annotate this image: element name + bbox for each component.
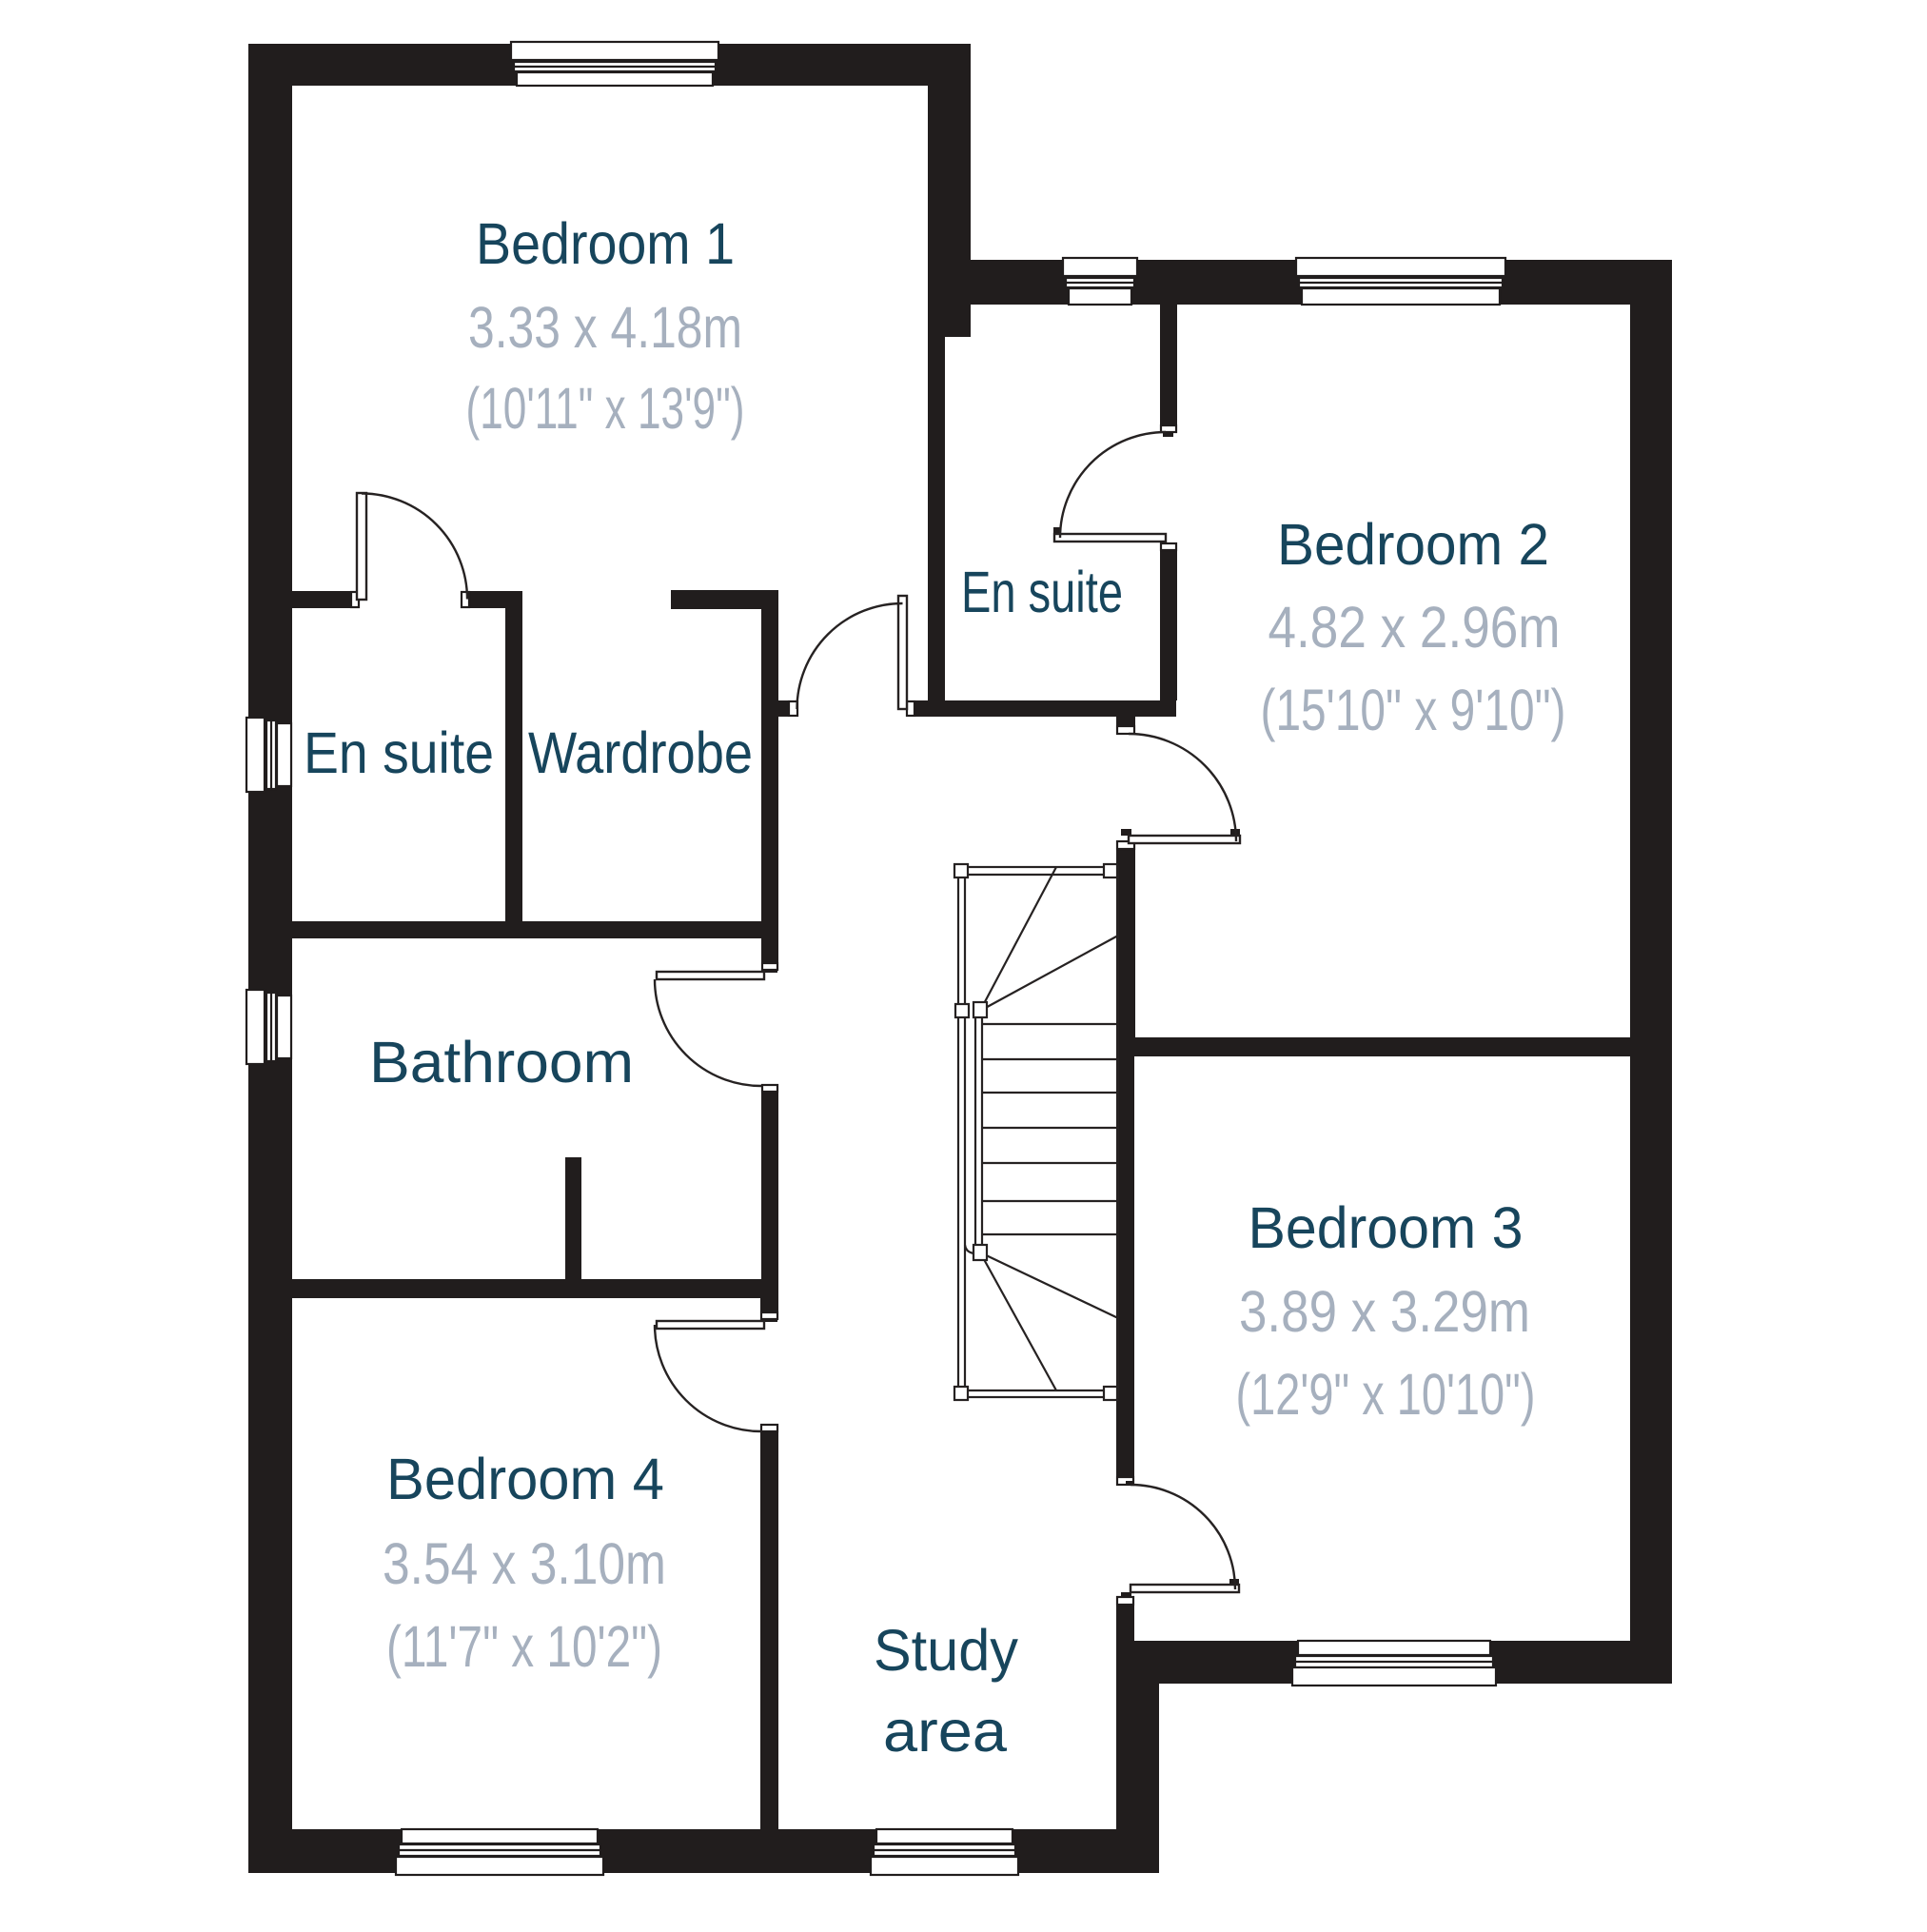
svg-text:Bedroom 4: Bedroom 4 <box>386 1447 664 1511</box>
svg-text:Bedroom 1: Bedroom 1 <box>476 211 735 276</box>
svg-text:Bedroom 2: Bedroom 2 <box>1277 512 1549 577</box>
svg-text:(12'9" x 10'10"): (12'9" x 10'10") <box>1236 1362 1536 1427</box>
svg-text:3.33 x 4.18m: 3.33 x 4.18m <box>468 295 742 360</box>
svg-text:Study: Study <box>874 1618 1018 1683</box>
svg-text:Bedroom 3: Bedroom 3 <box>1249 1195 1524 1260</box>
svg-text:Bathroom: Bathroom <box>369 1030 634 1094</box>
svg-text:3.54 x 3.10m: 3.54 x 3.10m <box>383 1531 666 1596</box>
svg-text:area: area <box>883 1699 1007 1764</box>
svg-text:3.89 x 3.29m: 3.89 x 3.29m <box>1239 1279 1530 1344</box>
svg-text:(15'10" x 9'10"): (15'10" x 9'10") <box>1261 678 1566 742</box>
svg-text:En suite: En suite <box>304 720 494 785</box>
svg-text:(10'11" x 13'9"): (10'11" x 13'9") <box>466 376 745 441</box>
svg-text:En suite: En suite <box>961 560 1123 624</box>
svg-text:(11'7" x 10'2"): (11'7" x 10'2") <box>386 1614 662 1679</box>
svg-text:Wardrobe: Wardrobe <box>528 720 753 785</box>
svg-text:4.82 x 2.96m: 4.82 x 2.96m <box>1268 595 1561 660</box>
